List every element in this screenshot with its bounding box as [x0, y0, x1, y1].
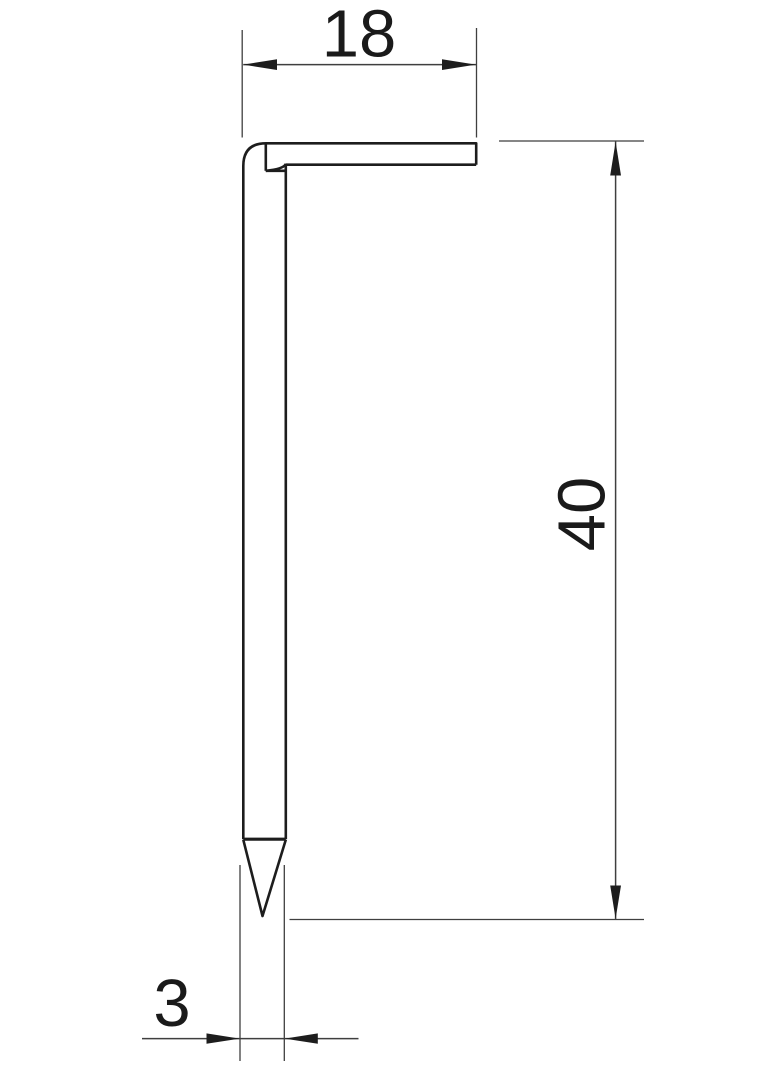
dimension-shank-thickness-label: 3 — [153, 966, 190, 1041]
arrowhead-right-icon — [207, 1033, 240, 1043]
arrowhead-left-icon — [243, 59, 277, 70]
technical-drawing-page: 18 40 3 — [0, 0, 784, 1066]
arrowhead-up-icon — [610, 142, 621, 176]
arrowhead-right-icon — [442, 59, 476, 70]
part-hook-nail — [243, 143, 476, 916]
technical-drawing-canvas: 18 40 3 — [0, 0, 784, 1066]
part-main-outline — [243, 143, 476, 839]
dimension-top-width: 18 — [242, 0, 476, 138]
dimension-top-width-label: 18 — [322, 0, 397, 72]
dimension-shank-thickness: 3 — [142, 865, 359, 1061]
part-point-taper — [243, 840, 285, 916]
arrowhead-left-icon — [285, 1033, 318, 1043]
arrowhead-down-icon — [610, 886, 621, 919]
dimension-height: 40 — [290, 141, 645, 920]
dimension-height-label: 40 — [545, 477, 620, 552]
